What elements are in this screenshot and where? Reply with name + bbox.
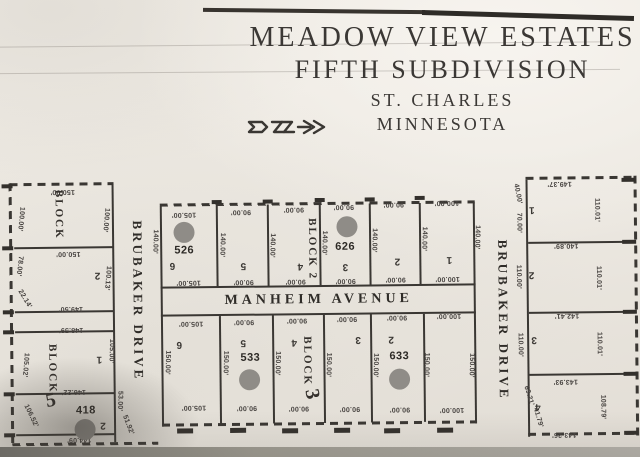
plat-line: [633, 176, 639, 437]
dimension-label: 78.00': [15, 256, 24, 277]
dimension-label: 90.00': [233, 278, 253, 285]
lot-number-label: 4: [291, 337, 297, 348]
boundary-tick: [212, 200, 222, 204]
lot-number-label: 2: [388, 334, 394, 345]
dimension-label: 140.00': [370, 228, 378, 253]
dimension-label: 140.89': [554, 242, 579, 249]
lot-number-label: 6: [176, 339, 182, 350]
dimension-label: 143.93': [553, 378, 578, 385]
block-label: BLOCK: [53, 190, 66, 240]
dimension-label: 22.14': [17, 289, 33, 310]
boundary-tick: [623, 310, 637, 314]
dimension-label: 69.21': [522, 385, 535, 407]
lot-number-label: 3: [355, 334, 361, 345]
dimension-label: 105.00': [176, 279, 201, 286]
boundary-tick: [624, 372, 638, 376]
boundary-tick: [624, 431, 638, 435]
dimension-label: 110.00': [515, 265, 522, 289]
dimension-label: 90.00': [334, 203, 354, 210]
dimension-label: 100.00': [434, 199, 459, 206]
boundary-tick: [365, 197, 375, 201]
lot-number-label: 6: [170, 260, 176, 271]
plat-line: [161, 283, 476, 288]
boundary-tick: [315, 198, 325, 202]
dimension-label: 90.00': [234, 318, 254, 325]
dimension-label: 90.00': [335, 277, 355, 284]
dimension-label: 90.00': [337, 315, 357, 322]
dimension-label: 148.59': [59, 326, 84, 333]
lot-number-label: 1: [529, 204, 535, 215]
plat-line: [528, 241, 635, 244]
plat-line: [530, 373, 637, 376]
lot-number-label: 2: [95, 270, 101, 281]
lot-number-label: 4: [535, 401, 541, 412]
lot-number-label: 3: [531, 334, 537, 345]
lot-number-label: 1: [446, 254, 452, 265]
dimension-label: 150.00': [56, 250, 81, 257]
dimension-label: 140.00': [151, 229, 159, 254]
dimension-label: 90.00': [289, 405, 309, 412]
block-label: 3: [300, 387, 324, 401]
photo-corner-shadow: [0, 357, 200, 457]
house-number-label: 626: [335, 241, 355, 253]
dimension-label: 100.00': [437, 312, 462, 319]
dimension-label: 150.00': [325, 353, 333, 378]
boundary-tick: [2, 246, 13, 250]
dimension-label: 40.00': [512, 183, 523, 204]
street-label: BRUBAKER DRIVE: [494, 240, 512, 401]
dimension-label: 100.13': [103, 266, 112, 291]
plat-line: [162, 420, 477, 426]
block-label: BLOCK: [301, 336, 314, 386]
dimension-label: 110.00': [517, 333, 524, 357]
plat-line: [14, 246, 113, 249]
dimension-label: 90.00': [231, 208, 251, 215]
dimension-label: 90.00': [390, 406, 410, 413]
house-number-label: 526: [174, 244, 194, 256]
dimension-label: 100.00': [435, 275, 460, 282]
house-location-dot: [173, 222, 194, 243]
boundary-tick: [230, 428, 246, 433]
dimension-label: 90.00': [384, 201, 404, 208]
boundary-tick: [415, 196, 425, 200]
house-location-dot: [239, 369, 260, 390]
dimension-label: 90.00': [387, 314, 407, 321]
dimension-label: 90.00': [385, 276, 405, 283]
lot-number-label: 2: [529, 269, 535, 280]
dimension-label: 149.37': [547, 180, 572, 187]
dimension-label: 100.00': [101, 208, 110, 233]
dimension-label: 90.00': [340, 405, 360, 412]
lot-number-label: 5: [240, 337, 246, 348]
lot-number-label: 4: [298, 261, 304, 272]
boundary-tick: [2, 184, 13, 188]
block-label: BLOCK 2: [306, 218, 319, 280]
plat-line: [525, 176, 635, 180]
boundary-tick: [263, 199, 273, 203]
dimension-label: 140.00': [268, 233, 276, 258]
dimension-label: 108.79': [599, 395, 606, 420]
boundary-tick: [621, 178, 635, 182]
dimension-label: 149.50': [59, 305, 84, 312]
house-location-dot: [336, 216, 357, 237]
dimension-label: 70.00': [515, 213, 522, 233]
dimension-label: 142.41': [555, 312, 580, 319]
dimension-label: 90.00': [237, 404, 257, 411]
dimension-label: 140.00': [320, 231, 328, 256]
dimension-label: 105.00': [172, 211, 197, 218]
boundary-tick: [437, 428, 453, 433]
dimension-label: 90.00': [285, 278, 305, 285]
lot-number-label: 3: [343, 261, 349, 272]
boundary-tick: [282, 428, 298, 433]
dimension-label: 100.00': [440, 406, 465, 413]
plat-photo: MEADOW VIEW ESTATES FIFTH SUBDIVISION ST…: [0, 0, 640, 457]
boundary-tick: [334, 428, 350, 433]
dimension-label: 140.00': [218, 233, 226, 258]
boundary-tick: [3, 310, 14, 314]
boundary-tick: [3, 330, 14, 334]
dimension-label: 110.01': [593, 198, 600, 222]
house-number-label: 633: [389, 350, 409, 362]
house-location-dot: [389, 369, 410, 390]
dimension-label: 100.00': [16, 207, 25, 232]
dimension-label: 110.01': [595, 266, 602, 290]
boundary-tick: [384, 428, 400, 433]
photo-bottom-edge: [0, 447, 640, 457]
lot-number-label: 2: [395, 256, 401, 267]
dimension-label: 140.00': [420, 227, 428, 252]
dimension-label: 105.00': [179, 320, 204, 327]
lot-number-label: 5: [241, 260, 247, 271]
dimension-label: 90.00': [287, 317, 307, 324]
dimension-label: 150.00': [222, 351, 230, 376]
dimension-label: 143.26': [552, 431, 577, 438]
dimension-label: 150.00': [274, 351, 282, 376]
dimension-label: 140.00': [473, 225, 481, 250]
plat-line: [161, 311, 476, 316]
dimension-label: 150.00': [468, 353, 476, 378]
plat-line: [529, 311, 636, 314]
plat-line: [10, 182, 114, 186]
dimension-label: 150.00': [423, 353, 431, 378]
house-number-label: 533: [240, 352, 260, 364]
dimension-label: 150.00': [372, 353, 380, 378]
dimension-label: 90.00': [284, 206, 304, 213]
dimension-label: 110.01': [596, 332, 603, 356]
boundary-tick: [622, 240, 636, 244]
street-label: MANHEIM AVENUE: [224, 291, 413, 309]
